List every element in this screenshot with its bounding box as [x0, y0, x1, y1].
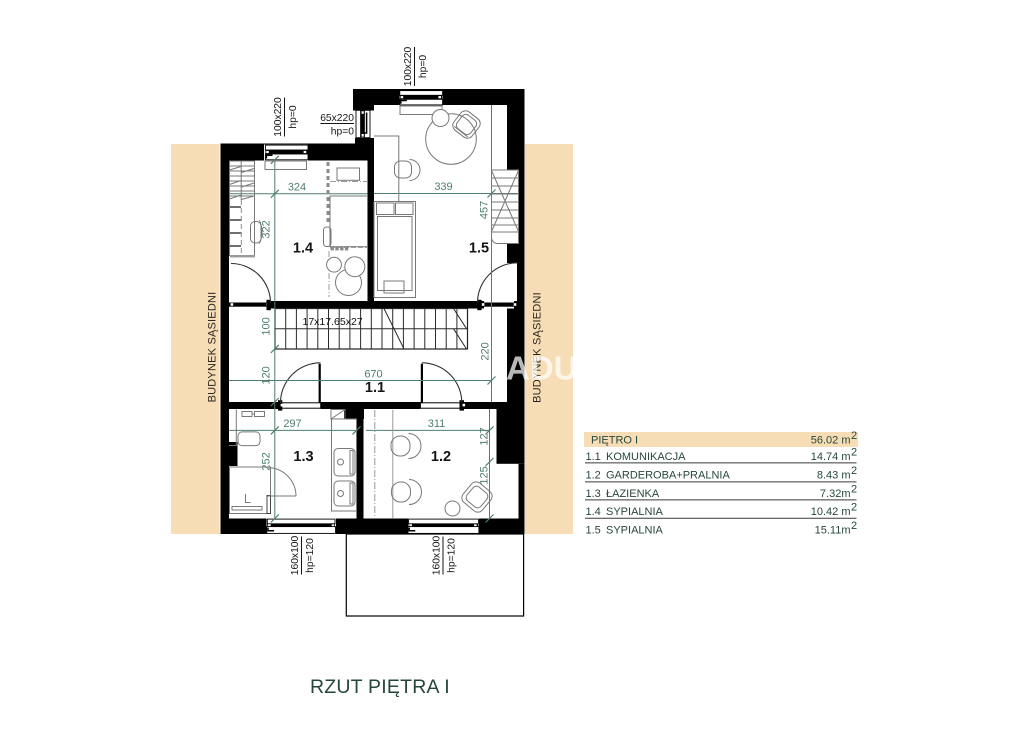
svg-text:120: 120: [261, 366, 273, 384]
svg-text:1.2: 1.2: [431, 449, 451, 465]
svg-text:2: 2: [851, 483, 857, 495]
svg-text:14.74 m: 14.74 m: [811, 451, 851, 463]
svg-text:SYPIALNIA: SYPIALNIA: [606, 506, 664, 518]
svg-text:1.5: 1.5: [586, 525, 601, 537]
svg-text:hp=120: hp=120: [447, 538, 458, 573]
svg-text:2: 2: [851, 446, 857, 458]
svg-text:1.4: 1.4: [293, 241, 313, 257]
svg-text:220: 220: [480, 342, 492, 360]
svg-text:ŁAZIENKA: ŁAZIENKA: [606, 488, 660, 500]
svg-text:1.3: 1.3: [586, 488, 601, 500]
svg-text:1.1: 1.1: [586, 451, 601, 463]
svg-text:2: 2: [851, 520, 857, 532]
svg-text:1.3: 1.3: [293, 449, 313, 465]
svg-text:1.2: 1.2: [586, 469, 601, 481]
svg-text:100x220: 100x220: [273, 97, 284, 137]
svg-text:100x220: 100x220: [403, 46, 414, 86]
svg-text:8.43 m: 8.43 m: [817, 469, 851, 481]
svg-text:KOMUNIKACJA: KOMUNIKACJA: [606, 451, 686, 463]
svg-text:PIĘTRO I: PIĘTRO I: [591, 435, 638, 447]
svg-text:670: 670: [364, 369, 382, 381]
svg-text:125: 125: [479, 466, 491, 484]
svg-text:56.02 m: 56.02 m: [811, 435, 851, 447]
svg-text:hp=0: hp=0: [418, 55, 429, 78]
svg-text:RZUT PIĘTRA I: RZUT PIĘTRA I: [310, 676, 450, 698]
svg-text:hp=0: hp=0: [288, 105, 299, 128]
svg-text:2: 2: [851, 430, 857, 442]
svg-text:339: 339: [434, 181, 452, 193]
svg-text:hp=0: hp=0: [331, 127, 354, 138]
svg-text:ADU: ADU: [506, 350, 578, 387]
svg-text:2: 2: [851, 502, 857, 514]
svg-text:457: 457: [479, 201, 491, 219]
svg-text:7.32m: 7.32m: [820, 488, 851, 500]
svg-text:100: 100: [261, 317, 273, 335]
svg-text:hp=120: hp=120: [305, 538, 316, 573]
svg-text:2: 2: [851, 465, 857, 477]
svg-text:65x220: 65x220: [320, 113, 354, 124]
svg-text:GARDEROBA+PRALNIA: GARDEROBA+PRALNIA: [606, 469, 730, 481]
svg-text:17x17.65x27: 17x17.65x27: [303, 316, 363, 328]
svg-text:324: 324: [288, 182, 306, 194]
svg-text:160x100: 160x100: [290, 535, 301, 575]
svg-text:10.42 m: 10.42 m: [811, 506, 851, 518]
svg-text:160x100: 160x100: [432, 535, 443, 575]
svg-text:1.4: 1.4: [586, 506, 601, 518]
svg-text:1.5: 1.5: [469, 241, 489, 257]
svg-text:1.1: 1.1: [365, 380, 385, 396]
svg-text:311: 311: [428, 418, 446, 430]
svg-text:297: 297: [283, 418, 301, 430]
svg-text:15.11m: 15.11m: [815, 525, 851, 537]
svg-text:127: 127: [479, 427, 491, 445]
svg-text:BUDYNEK SĄSIEDNI: BUDYNEK SĄSIEDNI: [207, 292, 219, 403]
svg-text:SYPIALNIA: SYPIALNIA: [606, 525, 664, 537]
